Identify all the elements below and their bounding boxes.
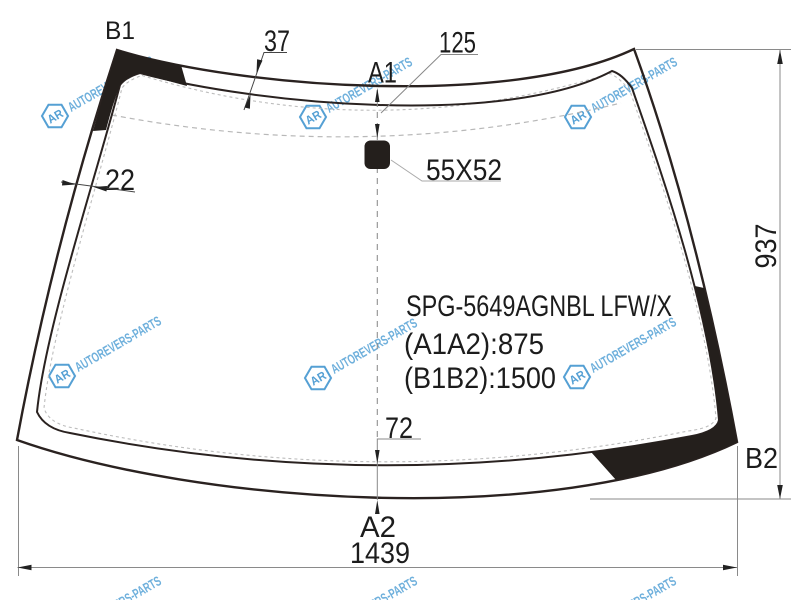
svg-text:1439: 1439 [350,537,410,570]
svg-text:55X52: 55X52 [426,154,502,187]
svg-text:72: 72 [385,412,413,445]
svg-text:(B1B2):1500: (B1B2):1500 [404,362,556,395]
svg-text:(A1A2):875: (A1A2):875 [404,328,544,361]
svg-text:SPG-5649AGNBL LFW/X: SPG-5649AGNBL LFW/X [406,290,672,323]
svg-text:937: 937 [750,224,783,269]
svg-text:22: 22 [105,164,135,197]
svg-text:A1: A1 [368,57,397,90]
svg-text:B2: B2 [745,443,778,475]
svg-text:37: 37 [264,25,290,58]
svg-text:B1: B1 [105,17,135,45]
